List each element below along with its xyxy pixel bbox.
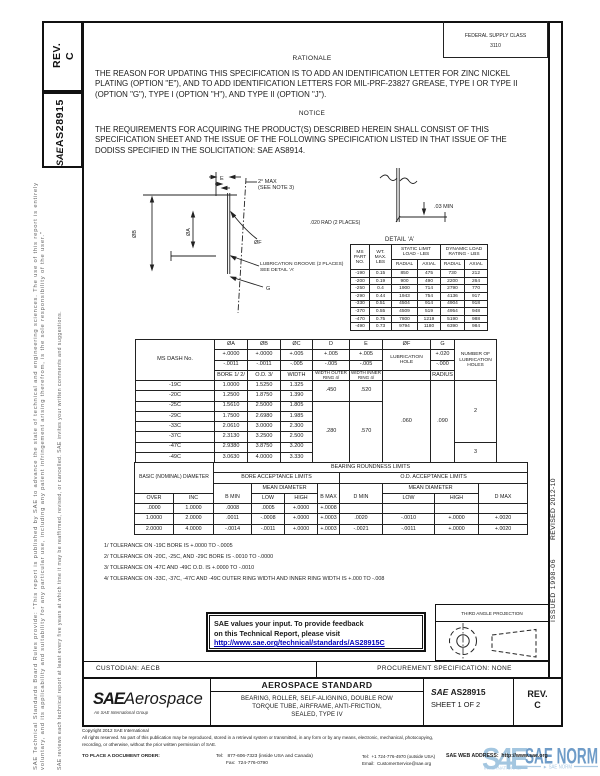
svg-text:SEE DETAIL ‘A’: SEE DETAIL ‘A’: [260, 267, 294, 273]
svg-text:ØB: ØB: [132, 230, 138, 238]
svg-text:INTERNATIONAL.: INTERNATIONAL.: [484, 766, 521, 771]
svg-text:► SAE NORM: ► SAE NORM: [543, 765, 572, 771]
svg-text:(SEE NOTE 3): (SEE NOTE 3): [258, 185, 294, 191]
svg-text:.020 RAD (2 PLACES): .020 RAD (2 PLACES): [310, 220, 361, 226]
svg-text:DETAIL ‘A’: DETAIL ‘A’: [385, 237, 414, 243]
svg-text:E: E: [220, 176, 224, 182]
svg-text:ØA: ØA: [186, 228, 192, 236]
svg-text:LUBRICATION GROOVE (2 PLACES): LUBRICATION GROOVE (2 PLACES): [260, 261, 344, 267]
svg-text:ØF: ØF: [254, 240, 262, 246]
svg-text:G: G: [266, 286, 270, 292]
svg-text:.03 MIN: .03 MIN: [434, 204, 453, 210]
